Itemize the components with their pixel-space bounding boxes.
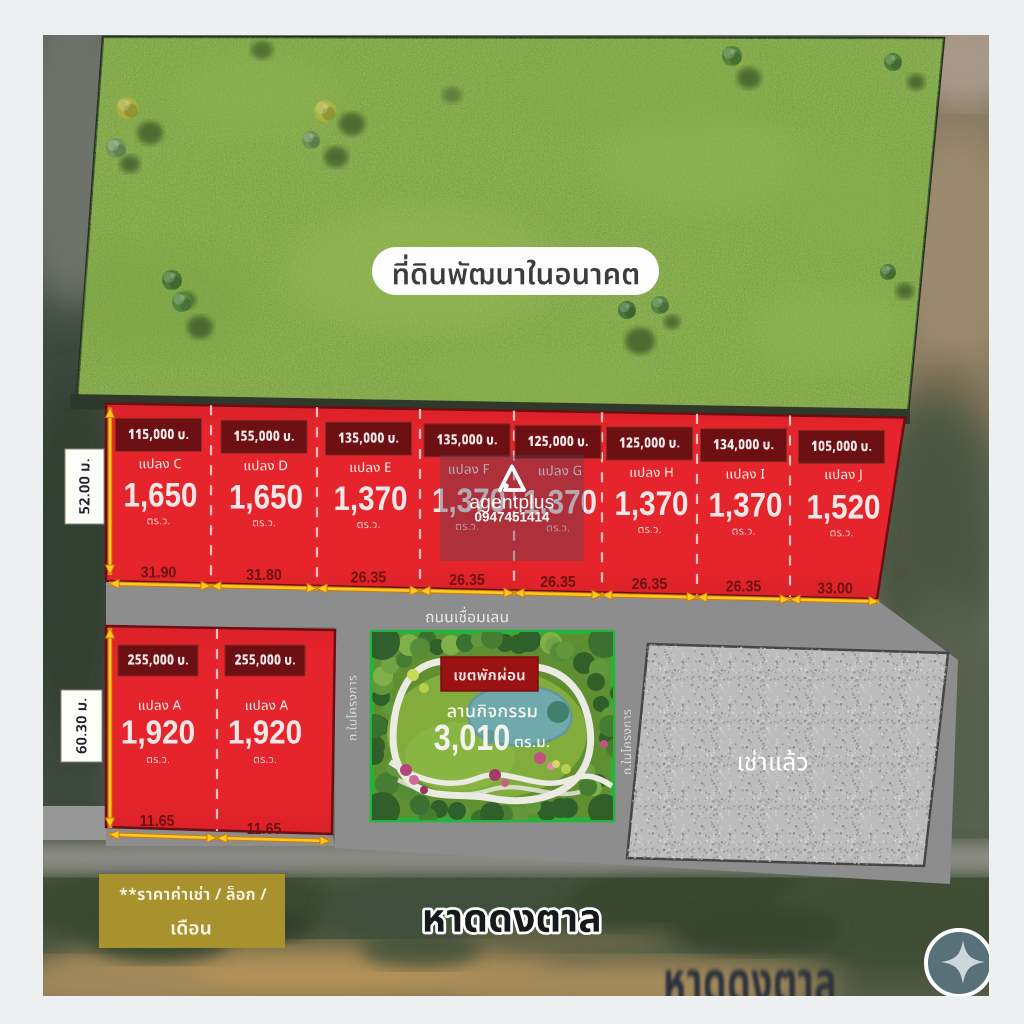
svg-text:26.35: 26.35: [449, 572, 485, 589]
svg-text:26.35: 26.35: [632, 577, 668, 594]
svg-text:1,370: 1,370: [333, 479, 407, 517]
svg-text:1,370: 1,370: [614, 484, 688, 522]
svg-text:26.35: 26.35: [540, 575, 576, 592]
svg-text:1,650: 1,650: [229, 477, 303, 515]
svg-text:33.00: 33.00: [817, 581, 853, 598]
svg-text:1,370: 1,370: [708, 486, 782, 524]
svg-text:0947451414: 0947451414: [474, 510, 550, 525]
svg-text:26.35: 26.35: [726, 579, 762, 596]
svg-text:1,920: 1,920: [228, 714, 302, 751]
svg-text:1,920: 1,920: [121, 714, 195, 751]
svg-text:1,650: 1,650: [123, 475, 197, 513]
svg-text:11.65: 11.65: [247, 822, 282, 839]
svg-text:26.35: 26.35: [351, 570, 387, 587]
svg-text:11.65: 11.65: [140, 814, 175, 831]
svg-text:1,520: 1,520: [806, 487, 880, 525]
svg-text:3,010: 3,010: [434, 719, 511, 759]
svg-text:31.90: 31.90: [141, 565, 177, 582]
svg-text:31.80: 31.80: [246, 568, 282, 585]
